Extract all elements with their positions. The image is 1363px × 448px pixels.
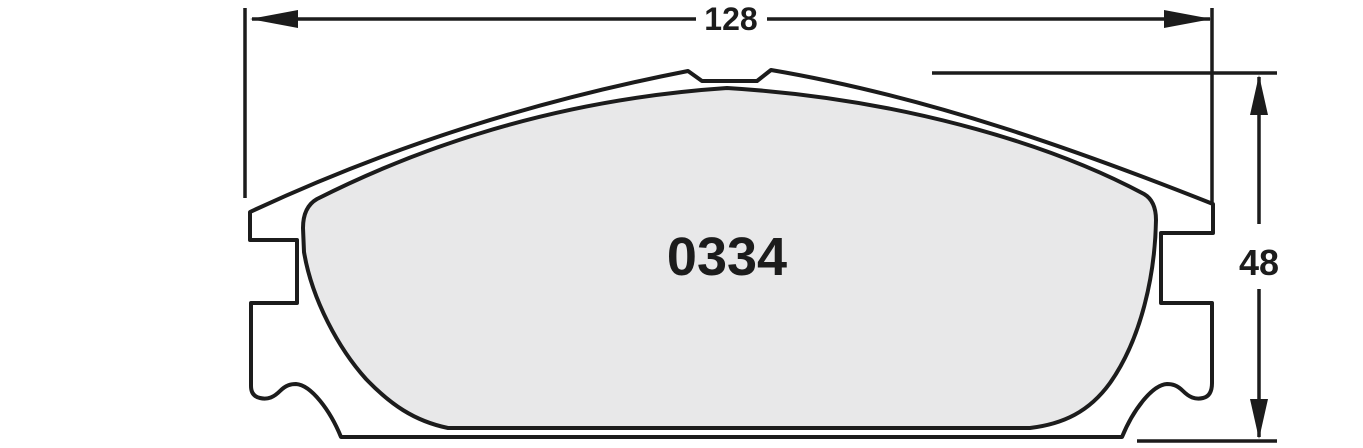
height-dimension-label: 48 bbox=[1239, 242, 1279, 283]
arrowhead-width-left bbox=[250, 10, 298, 28]
brake-pad-diagram-page: 128480334 bbox=[0, 0, 1363, 448]
brake-pad-diagram-canvas: 128480334 bbox=[0, 0, 1363, 448]
width-dimension-label: 128 bbox=[704, 1, 757, 37]
arrowhead-width-right bbox=[1164, 10, 1212, 28]
arrowhead-height-bottom bbox=[1250, 399, 1268, 439]
arrowhead-height-top bbox=[1250, 75, 1268, 115]
part-number-label: 0334 bbox=[667, 227, 787, 287]
